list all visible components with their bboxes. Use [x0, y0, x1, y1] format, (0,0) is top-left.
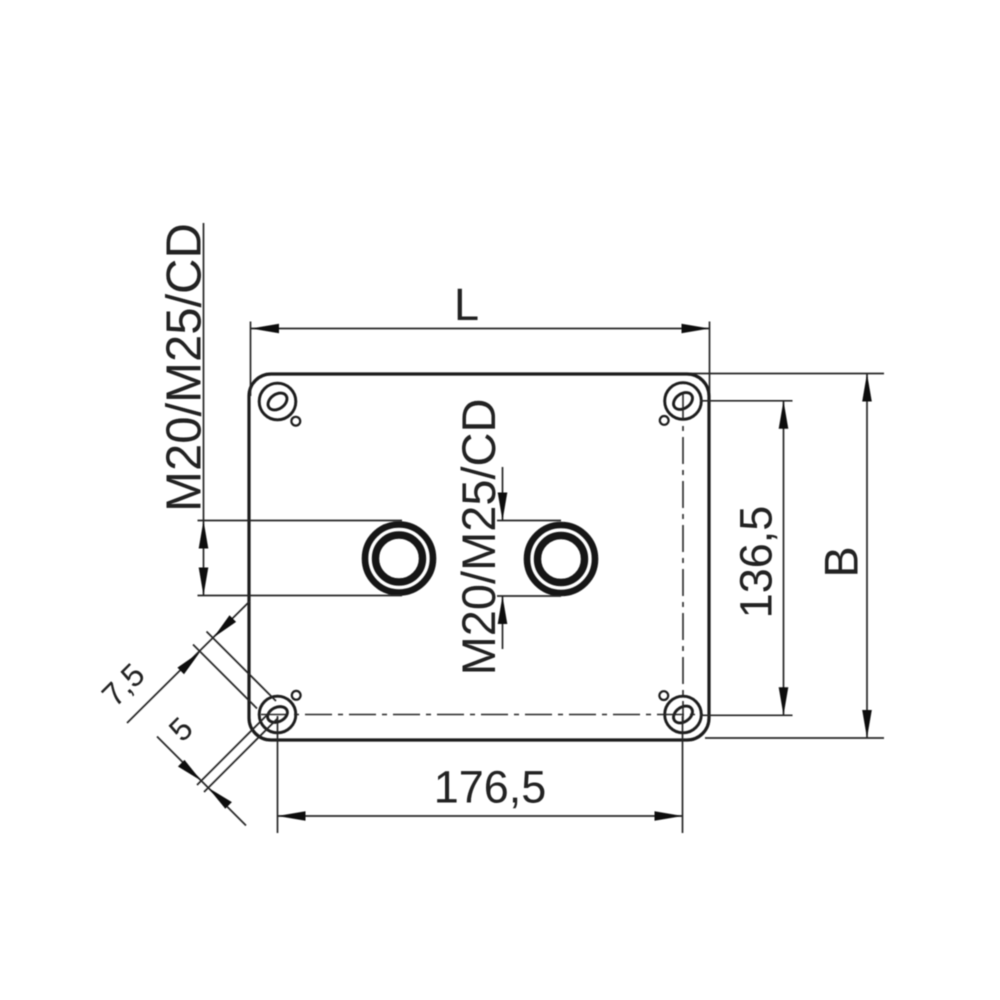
svg-text:176,5: 176,5 [434, 762, 547, 813]
svg-text:5: 5 [162, 710, 200, 748]
svg-text:L: L [454, 279, 479, 330]
svg-text:136,5: 136,5 [731, 506, 782, 619]
svg-text:B: B [815, 546, 868, 577]
svg-text:7,5: 7,5 [95, 656, 152, 713]
svg-text:M20/M25/CD: M20/M25/CD [452, 399, 505, 676]
svg-text:M20/M25/CD: M20/M25/CD [158, 223, 212, 512]
